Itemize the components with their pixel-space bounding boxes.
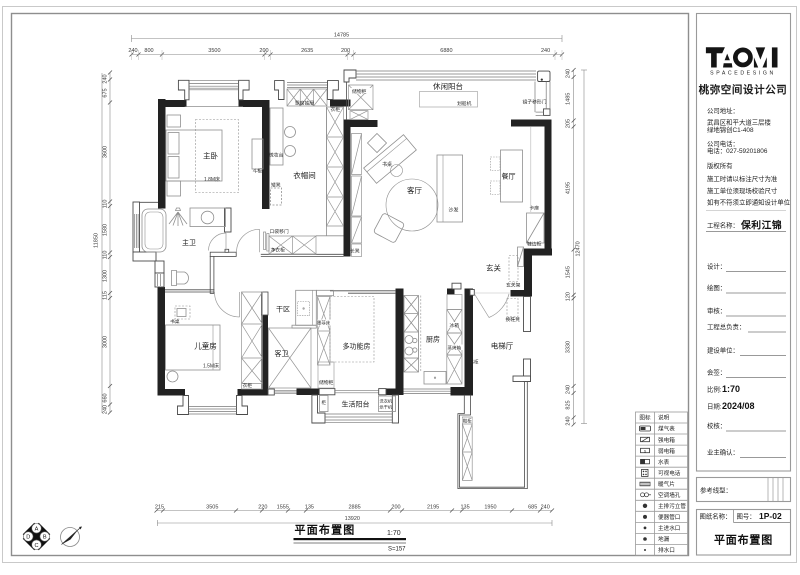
svg-text:施工单位须现场校验尺寸: 施工单位须现场校验尺寸	[707, 186, 778, 195]
svg-text:1485: 1485	[566, 93, 572, 105]
svg-text:B: B	[43, 535, 47, 541]
svg-text:武昌区和平大道三层楼: 武昌区和平大道三层楼	[707, 118, 772, 127]
svg-text:蒸烤箱: 蒸烤箱	[448, 345, 462, 352]
svg-text:玄关: 玄关	[486, 263, 501, 273]
svg-text:800: 800	[144, 48, 153, 54]
svg-text:图标: 图标	[639, 414, 651, 422]
svg-text:13920: 13920	[345, 516, 360, 522]
svg-text:干区: 干区	[276, 306, 290, 314]
svg-text:240: 240	[128, 48, 137, 54]
svg-text:1950: 1950	[484, 505, 496, 511]
svg-text:A: A	[35, 526, 39, 532]
svg-text:S=157: S=157	[388, 547, 406, 553]
svg-text:煤气表: 煤气表	[658, 425, 675, 433]
svg-text:215: 215	[155, 505, 164, 511]
svg-text:1.5M床: 1.5M床	[203, 363, 219, 370]
svg-text:餐厅: 餐厅	[502, 172, 516, 181]
svg-text:储物柜: 储物柜	[352, 88, 367, 95]
svg-text:保利江锦: 保利江锦	[740, 219, 782, 232]
svg-text:冰箱: 冰箱	[450, 322, 460, 329]
svg-text:斗柜: 斗柜	[253, 168, 263, 175]
svg-text:设计：: 设计：	[707, 262, 726, 271]
svg-text:240: 240	[103, 74, 109, 83]
svg-text:公司地址：: 公司地址：	[707, 106, 739, 115]
svg-text:2024/08: 2024/08	[722, 401, 755, 411]
svg-text:6880: 6880	[440, 48, 452, 54]
svg-text:电梯厅: 电梯厅	[491, 341, 514, 351]
svg-text:镜子移形门: 镜子移形门	[523, 99, 547, 106]
svg-text:多功能房: 多功能房	[343, 342, 371, 351]
svg-text:D: D	[26, 535, 30, 541]
svg-text:衣柜: 衣柜	[331, 106, 341, 113]
svg-text:660: 660	[103, 393, 109, 402]
svg-text:240: 240	[541, 505, 550, 511]
svg-text:储物柜: 储物柜	[319, 379, 334, 386]
svg-text:换鞋凳: 换鞋凳	[506, 316, 521, 323]
svg-text:平面布置图: 平面布置图	[295, 523, 356, 537]
svg-text:205: 205	[566, 119, 572, 128]
svg-text:3505: 3505	[206, 505, 218, 511]
svg-text:1545: 1545	[566, 266, 572, 278]
svg-text:240: 240	[566, 385, 572, 394]
svg-text:强电箱: 强电箱	[658, 436, 675, 444]
svg-text:120: 120	[566, 292, 572, 301]
svg-text:3600: 3600	[103, 146, 109, 158]
svg-text:柜: 柜	[322, 399, 327, 406]
svg-text:11850: 11850	[94, 233, 100, 248]
svg-text:矮凳: 矮凳	[271, 182, 281, 189]
svg-text:240: 240	[103, 405, 109, 414]
svg-text:如有不符须立即通知设计单位: 如有不符须立即通知设计单位	[707, 198, 791, 207]
svg-text:长凳: 长凳	[350, 248, 360, 255]
svg-text:图号：: 图号：	[737, 513, 756, 521]
svg-text:地漏: 地漏	[658, 535, 670, 543]
svg-text:水表: 水表	[658, 458, 670, 466]
svg-text:桃弥空间设计公司: 桃弥空间设计公司	[699, 83, 788, 96]
svg-text:洗衣机: 洗衣机	[380, 398, 393, 405]
svg-text:衣帽间: 衣帽间	[293, 170, 316, 180]
svg-text:240: 240	[541, 48, 550, 54]
svg-text:可视电话: 可视电话	[658, 469, 681, 477]
svg-text:工程总负责：: 工程总负责：	[707, 322, 745, 331]
svg-text:240: 240	[566, 416, 572, 425]
svg-text:客卫: 客卫	[275, 349, 289, 358]
svg-text:厨房: 厨房	[426, 335, 440, 344]
svg-text:3000: 3000	[103, 336, 109, 348]
svg-text:2635: 2635	[301, 48, 313, 54]
svg-text:200: 200	[259, 48, 268, 54]
svg-text:卡座: 卡座	[530, 205, 540, 212]
svg-text:220: 220	[258, 505, 267, 511]
svg-text:2885: 2885	[348, 505, 360, 511]
svg-text:110: 110	[103, 251, 109, 260]
svg-text:飘窗抽屉: 飘窗抽屉	[295, 99, 314, 106]
svg-text:2195: 2195	[427, 505, 439, 511]
svg-text:工程名称：: 工程名称：	[707, 221, 739, 230]
svg-text:施工时请以标注尺寸为准: 施工时请以标注尺寸为准	[707, 174, 778, 183]
svg-text:净衣柜: 净衣柜	[271, 247, 286, 254]
svg-text:135: 135	[305, 505, 314, 511]
svg-text:685: 685	[528, 505, 537, 511]
svg-text:沙发: 沙发	[449, 207, 459, 214]
svg-text:1:70: 1:70	[387, 530, 401, 537]
svg-text:200: 200	[391, 505, 400, 511]
svg-text:说明: 说明	[658, 414, 670, 422]
svg-text:比例:: 比例:	[707, 385, 722, 394]
svg-text:1555: 1555	[277, 505, 289, 511]
svg-text:115: 115	[103, 291, 109, 300]
svg-text:平面布置图: 平面布置图	[714, 533, 773, 547]
svg-text:墨菲床: 墨菲床	[317, 320, 331, 327]
svg-text:校核：: 校核：	[707, 421, 726, 430]
svg-text:675: 675	[103, 88, 109, 97]
svg-text:公司电话：: 公司电话：	[707, 139, 739, 148]
svg-text:休闲阳台: 休闲阳台	[433, 81, 463, 91]
svg-text:梳妆台: 梳妆台	[269, 152, 284, 159]
svg-text:生活阳台: 生活阳台	[342, 400, 370, 409]
svg-text:吊柜: 吊柜	[470, 359, 479, 366]
svg-text:主排污立管: 主排污立管	[658, 502, 686, 510]
svg-text:烘干机: 烘干机	[380, 404, 393, 411]
svg-text:划船机: 划船机	[457, 100, 472, 107]
svg-text:主卫: 主卫	[182, 238, 196, 247]
svg-text:1:70: 1:70	[722, 384, 740, 394]
svg-text:SPACEDESIGN: SPACEDESIGN	[710, 71, 776, 77]
svg-text:会签：: 会签：	[707, 368, 726, 377]
svg-text:口袋移门: 口袋移门	[270, 228, 289, 235]
svg-text:书桌: 书桌	[170, 318, 180, 325]
svg-text:客厅: 客厅	[407, 185, 422, 195]
svg-text:鞋边柜: 鞋边柜	[527, 241, 542, 248]
svg-text:排水口: 排水口	[658, 546, 675, 554]
svg-text:主进水口: 主进水口	[658, 524, 680, 532]
svg-text:3330: 3330	[566, 341, 572, 353]
svg-text:日期:: 日期:	[707, 403, 722, 411]
svg-text:1.8M床: 1.8M床	[204, 176, 220, 183]
svg-text:3500: 3500	[208, 48, 220, 54]
svg-text:空调墙孔: 空调墙孔	[658, 491, 681, 499]
svg-text:电话：027-59201806: 电话：027-59201806	[707, 146, 768, 155]
svg-text:书桌: 书桌	[382, 161, 392, 168]
svg-text:135: 135	[461, 505, 470, 511]
svg-text:S: S	[644, 449, 647, 453]
svg-text:衣柜: 衣柜	[243, 382, 253, 389]
svg-text:1300: 1300	[103, 270, 109, 282]
svg-text:1P-02: 1P-02	[759, 511, 782, 521]
svg-text:240: 240	[566, 69, 572, 78]
svg-text:绘图：: 绘图：	[707, 283, 726, 292]
svg-text:弱电箱: 弱电箱	[658, 447, 675, 455]
svg-text:业主确认：: 业主确认：	[707, 448, 739, 457]
svg-text:12470: 12470	[576, 241, 582, 256]
svg-text:825: 825	[566, 400, 572, 409]
svg-text:儿童房: 儿童房	[194, 341, 217, 351]
svg-text:鞋柜: 鞋柜	[463, 418, 472, 425]
svg-text:绿地锦创C1-408: 绿地锦创C1-408	[707, 125, 754, 134]
svg-text:主卧: 主卧	[203, 151, 218, 161]
svg-text:14785: 14785	[334, 33, 349, 39]
svg-text:审核：: 审核：	[707, 306, 726, 315]
svg-text:玄关架: 玄关架	[506, 282, 521, 289]
svg-text:暖气片: 暖气片	[658, 480, 675, 488]
svg-text:图纸名称：: 图纸名称：	[700, 512, 732, 521]
svg-text:C: C	[34, 543, 38, 549]
svg-text:版权所有: 版权所有	[707, 161, 733, 170]
svg-text:参考线型：: 参考线型：	[700, 486, 732, 495]
svg-text:建设单位：: 建设单位：	[707, 346, 739, 355]
svg-text:110: 110	[103, 200, 109, 209]
svg-text:1580: 1580	[103, 224, 109, 236]
svg-text:4195: 4195	[566, 182, 572, 194]
svg-text:200: 200	[341, 48, 350, 54]
svg-text:便器管口: 便器管口	[658, 513, 680, 521]
